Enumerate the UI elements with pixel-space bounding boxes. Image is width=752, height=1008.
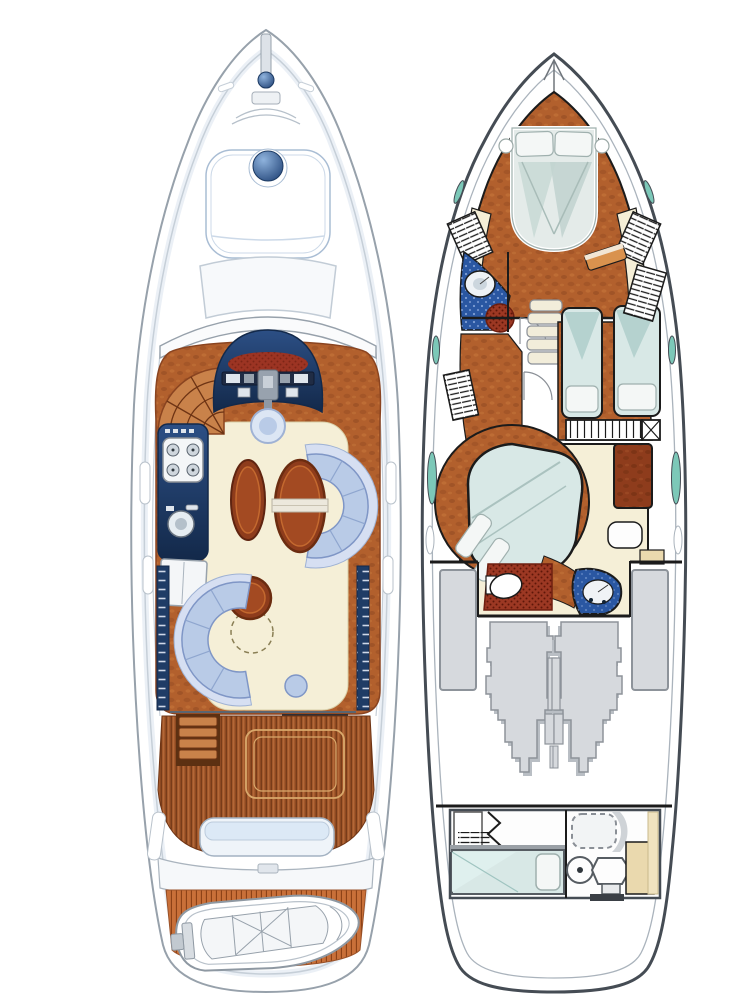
stairs <box>527 300 562 364</box>
vip-bed <box>499 128 609 250</box>
faucet <box>186 505 198 510</box>
stove <box>163 438 203 482</box>
yacht-deck-plans <box>0 0 752 1008</box>
fuel-tank-port <box>440 570 476 690</box>
bow-sunpad <box>206 149 330 258</box>
deck-plans-canvas <box>0 0 752 1008</box>
anchor-roller <box>258 72 274 88</box>
vip-pillow-starboard <box>555 131 593 156</box>
main-deck-plan <box>131 30 400 992</box>
transom-handle <box>258 864 278 873</box>
cockpit-steps <box>176 714 220 766</box>
stern-bench <box>200 818 334 856</box>
tender-outboard <box>171 933 184 950</box>
crew-toilet <box>592 858 630 884</box>
master-head <box>484 564 552 610</box>
crew-pillow <box>536 854 560 890</box>
hatch-dome <box>253 151 283 181</box>
master-cabinets <box>614 444 652 508</box>
bedside-shelf-port <box>499 139 513 153</box>
sideboard-oval <box>231 460 265 540</box>
bedside-shelf-starboard <box>595 139 609 153</box>
twin-berth-inboard <box>562 308 602 418</box>
pouf-seat <box>285 675 307 697</box>
crew-cabin <box>450 810 660 901</box>
vanity-stool <box>608 522 642 548</box>
fuel-tank-starboard <box>632 570 668 690</box>
vip-pillow-port <box>516 131 554 156</box>
twin-berth-outboard <box>614 306 660 416</box>
lower-deck-plan <box>422 54 686 992</box>
shower-pan <box>572 814 616 848</box>
twin-locker-row <box>566 420 660 440</box>
cabin-front-panel <box>200 257 336 318</box>
crew-sill <box>590 894 624 901</box>
